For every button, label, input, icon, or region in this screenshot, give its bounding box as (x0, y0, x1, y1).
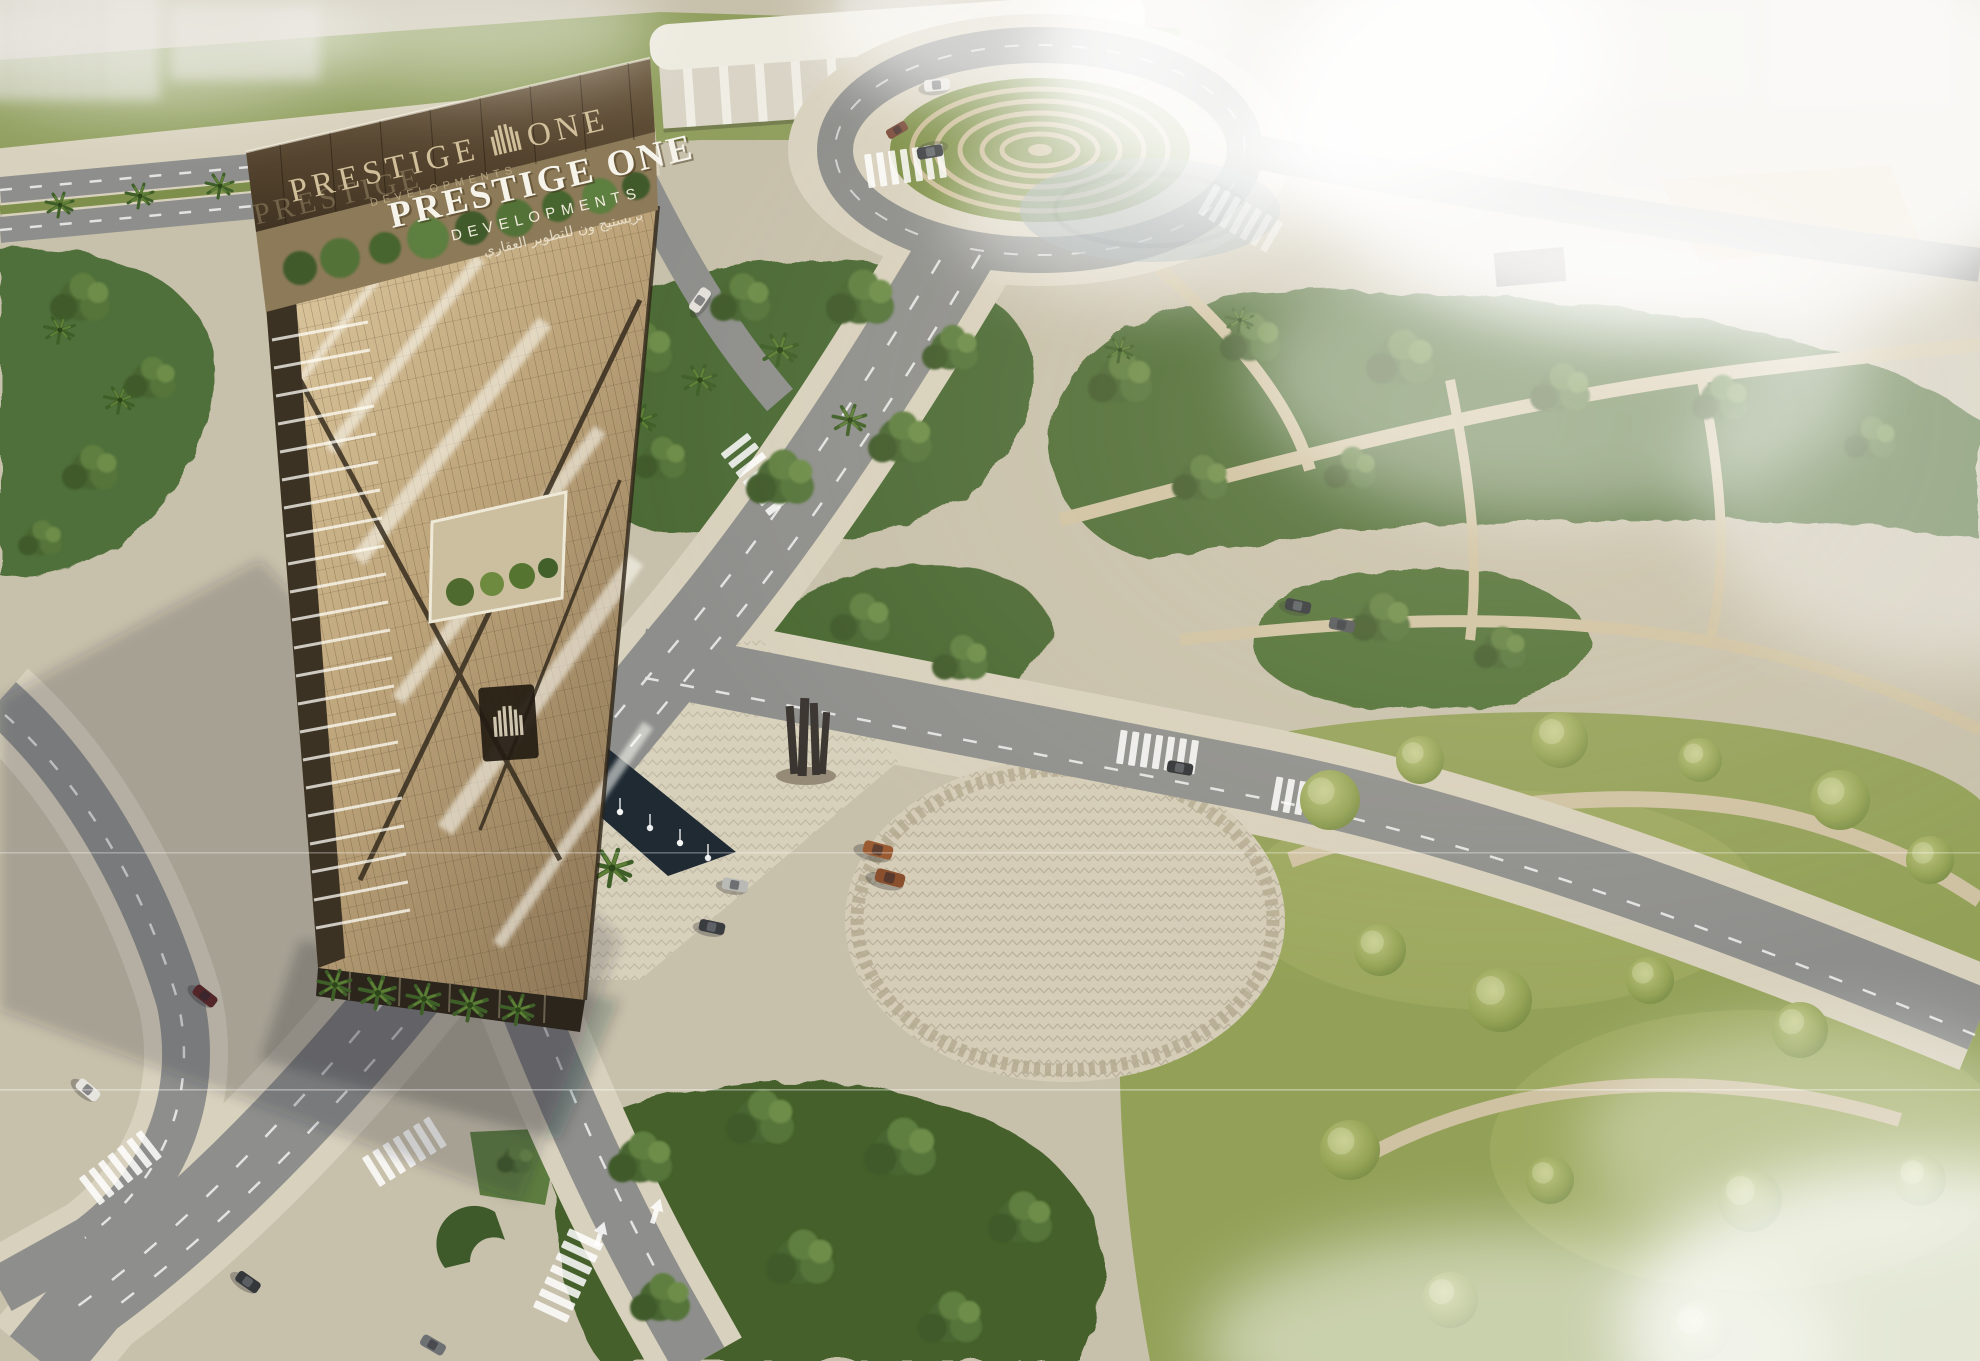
facade-emblem (478, 684, 539, 762)
artifact-line-lower (0, 1089, 1980, 1091)
render-canvas: PRESTIGE PRESTIGE ONE DEVELOPMENTS PREST… (0, 0, 1980, 1361)
fog-patch (950, 100, 1370, 300)
aerial-render: PRESTIGE PRESTIGE ONE DEVELOPMENTS PREST… (0, 0, 1980, 1361)
artifact-line-upper (0, 852, 1980, 854)
